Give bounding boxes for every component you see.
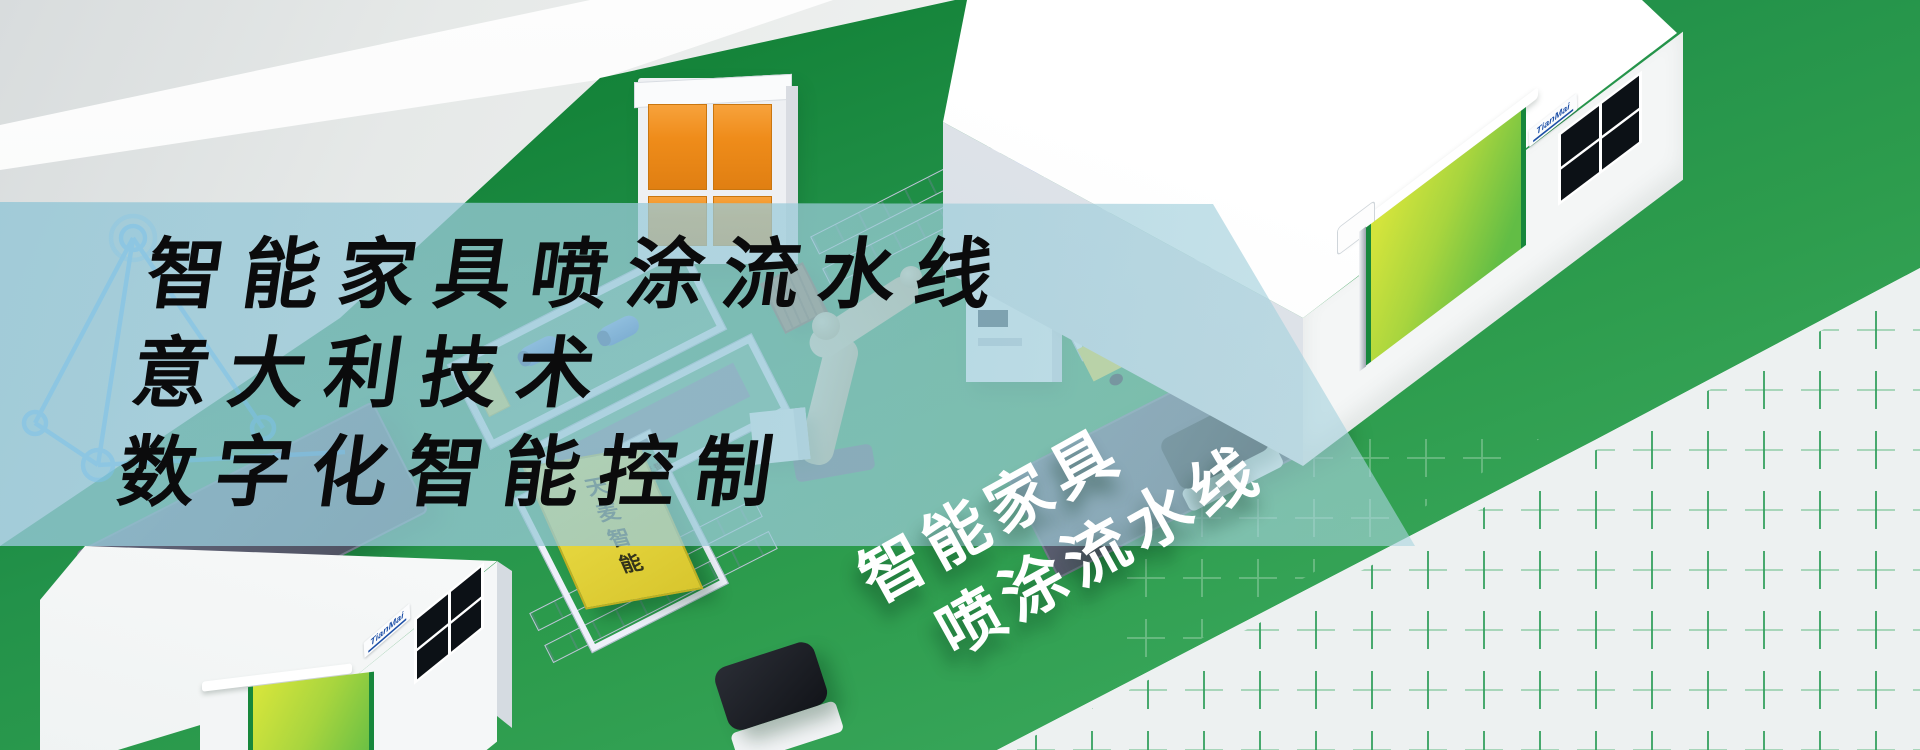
main-heading: 智能家具喷涂流水线 意大利技术 数字化智能控制: [112, 226, 1018, 523]
black-agv-2: [710, 637, 845, 750]
heading-line-2: 意大利技术: [126, 325, 1004, 424]
heading-line-3: 数字化智能控制: [112, 424, 990, 523]
door-post-right-building: [1359, 227, 1366, 372]
booth-top-cap: [634, 74, 792, 108]
banner-canvas: 天麦智能 天麦智能: [0, 0, 1920, 750]
heading-line-1: 智能家具喷涂流水线: [140, 226, 1018, 325]
